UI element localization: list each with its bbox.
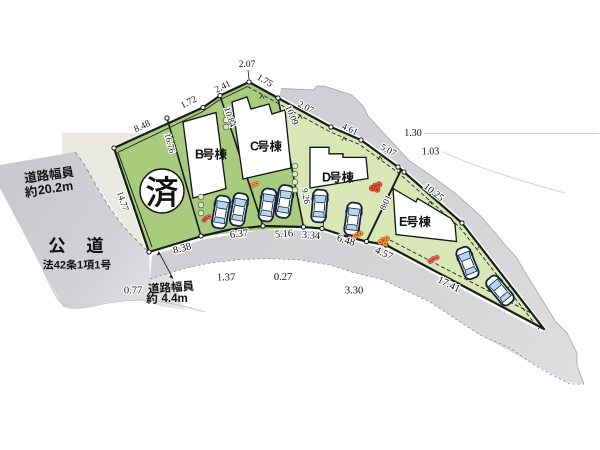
svg-text:1.37: 1.37 bbox=[217, 273, 235, 284]
svg-text:3.30: 3.30 bbox=[345, 286, 363, 297]
svg-text:1.30: 1.30 bbox=[404, 128, 422, 139]
svg-text:3.34: 3.34 bbox=[301, 230, 321, 242]
svg-text:6.37: 6.37 bbox=[229, 228, 248, 241]
svg-text:0.27: 0.27 bbox=[274, 272, 292, 283]
svg-text:2.07: 2.07 bbox=[239, 60, 256, 70]
svg-text:E: E bbox=[399, 215, 407, 229]
svg-text:5.16: 5.16 bbox=[275, 228, 294, 240]
svg-text:0.77: 0.77 bbox=[124, 286, 142, 297]
svg-text:1.03: 1.03 bbox=[422, 146, 440, 157]
svg-text:2: 2 bbox=[60, 260, 66, 272]
svg-text:1: 1 bbox=[94, 260, 100, 272]
svg-text:4.4m: 4.4m bbox=[162, 293, 188, 305]
svg-text:1: 1 bbox=[77, 260, 83, 272]
